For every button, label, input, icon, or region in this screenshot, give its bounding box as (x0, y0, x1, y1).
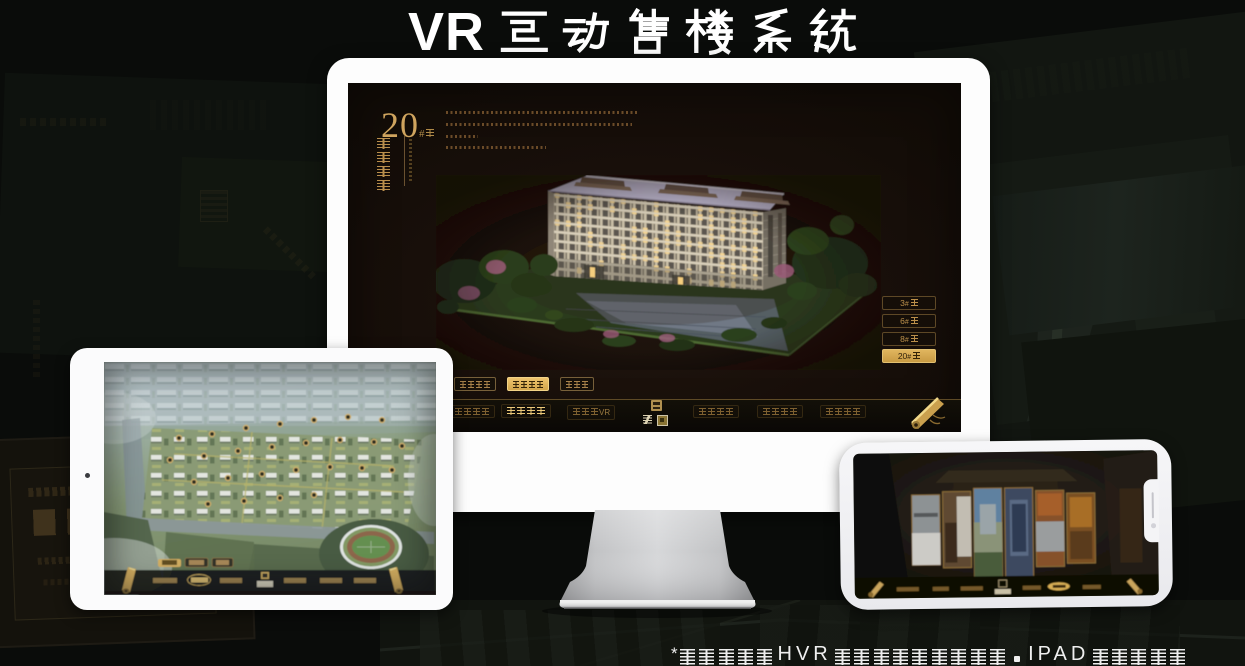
svg-text:VR: VR (408, 3, 485, 59)
